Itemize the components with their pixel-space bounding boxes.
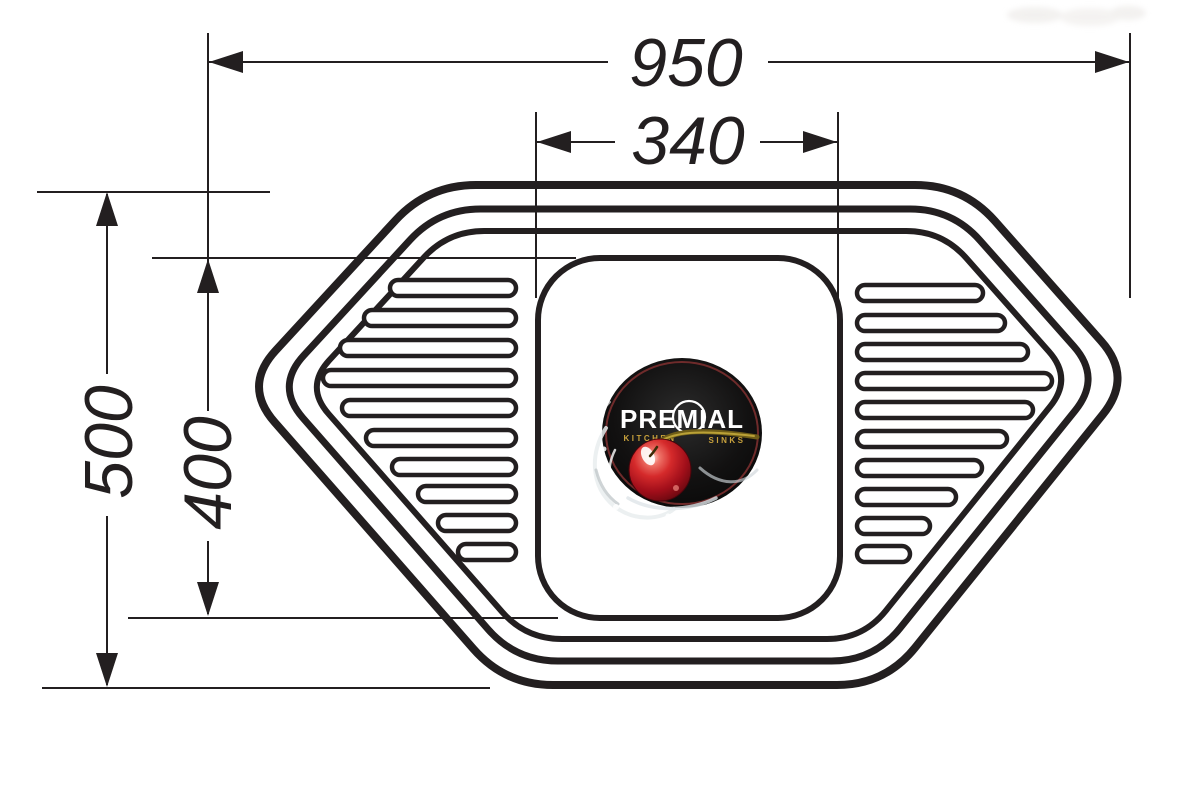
drain-groove-slot [392,459,516,475]
dim-label-500: 500 [71,385,147,499]
drain-groove-slot [366,430,516,446]
drain-groove-slot [857,431,1007,447]
drain-groove-slot [857,344,1028,360]
drain-groove-slot [857,489,956,505]
sink-technical-drawing: 950 340 500 400 [0,0,1200,800]
drain-groove-slot [323,370,516,386]
drain-groove-slot [458,544,516,560]
drain-groove-slot [340,340,516,356]
dim-label-400: 400 [170,416,246,530]
drain-groove-slot [857,315,1005,331]
tagline-sinks-text: SINKS [709,436,746,445]
drain-groove-slot [364,310,516,326]
drain-groove-slot [418,486,516,502]
drain-groove-slot [390,280,516,296]
drain-groove-slot [438,515,516,531]
drawing-svg: 950 340 500 400 [0,0,1200,800]
drain-groove-slot [857,402,1033,418]
drain-groove-slot [857,460,982,476]
drain-groove-slot [342,400,516,416]
drain-groove-slot [857,546,910,562]
drain-groove-slot [857,518,930,534]
dim-label-950: 950 [629,25,743,101]
drain-groove-slot [857,373,1052,389]
dim-label-340: 340 [631,103,745,179]
drain-groove-slot [857,285,983,301]
brand-name-text: PREMIAL [620,404,744,434]
